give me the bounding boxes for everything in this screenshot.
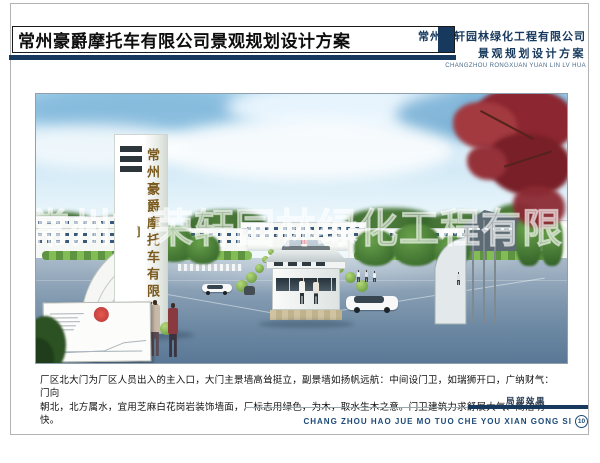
footer-pinyin-line: CHANG ZHOU HAO JUE MO TUO CHE YOU XIAN G…	[303, 415, 588, 428]
car-wheel	[354, 307, 360, 313]
kiosk-window-band	[276, 278, 336, 291]
shrub	[255, 264, 264, 273]
person	[166, 303, 180, 357]
white-car-small	[202, 282, 232, 295]
footer-pinyin-text: CHANG ZHOU HAO JUE MO TUO CHE YOU XIAN G…	[303, 417, 572, 426]
person	[298, 278, 306, 304]
plan-scribble	[50, 313, 84, 314]
car-wheel	[384, 307, 390, 313]
person	[364, 270, 369, 282]
maple-foliage	[467, 146, 507, 180]
guard-kiosk	[264, 246, 348, 326]
title-underline	[9, 55, 456, 60]
person	[456, 272, 461, 285]
kiosk-stone-base	[270, 310, 342, 320]
person	[372, 271, 377, 282]
red-seal	[94, 307, 109, 322]
kiosk-shadow	[258, 320, 354, 328]
kiosk-slot	[316, 262, 325, 266]
footer-rule-navy	[468, 405, 588, 409]
shrub	[246, 272, 257, 283]
person	[356, 270, 361, 282]
kiosk-slot	[274, 262, 283, 266]
kiosk-slot	[288, 262, 297, 266]
kiosk-slot	[302, 262, 311, 266]
page-number-badge: 10	[575, 415, 588, 428]
rendering-image: 常州豪爵摩托车有限公司	[35, 93, 568, 364]
designer-caption: CHANGZHOU RONGXUAN YUAN LIN LV HUA	[418, 63, 586, 69]
car-wheel	[206, 291, 210, 295]
car-window	[207, 285, 223, 289]
designer-subtitle: 景观规划设计方案	[418, 45, 586, 61]
designer-block: 常州荣轩园林绿化工程有限公司 景观规划设计方案 CHANGZHOU RONGXU…	[418, 28, 586, 69]
car-wheel	[223, 291, 227, 295]
description-line1: 厂区北大门为厂区人员出入的主入口，大门主景墙高耸挺立，副景墙如扬帆远航：中间设门…	[40, 375, 554, 400]
scooter	[244, 286, 255, 295]
designer-name: 常州荣轩园林绿化工程有限公司	[418, 28, 586, 44]
person	[312, 279, 320, 304]
white-car	[346, 292, 398, 314]
page-title: 常州豪爵摩托车有限公司景观规划设计方案	[13, 27, 438, 52]
car-window	[354, 296, 384, 303]
title-bar: 常州豪爵摩托车有限公司景观规划设计方案	[12, 26, 455, 53]
watermark-text: 常州市荣轩园林绿化工程有限公司	[35, 196, 568, 254]
